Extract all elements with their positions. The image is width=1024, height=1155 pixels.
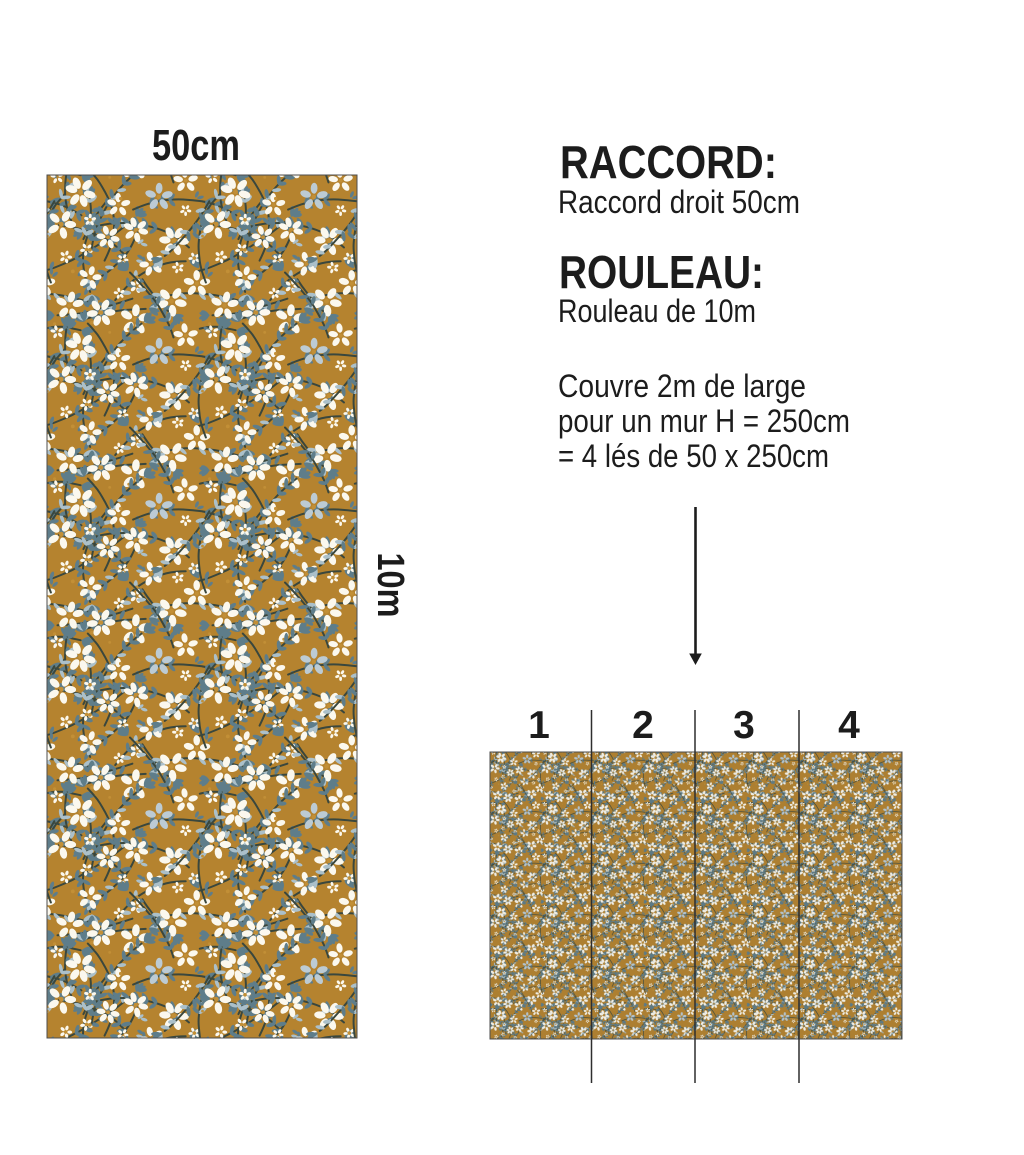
svg-text:RACCORD:: RACCORD: bbox=[560, 136, 777, 188]
svg-text:= 4 lés de 50 x 250cm: = 4 lés de 50 x 250cm bbox=[558, 438, 829, 474]
svg-text:1: 1 bbox=[528, 704, 550, 747]
svg-text:4: 4 bbox=[838, 704, 860, 747]
svg-text:10m: 10m bbox=[369, 553, 411, 618]
svg-text:pour un mur H = 250cm: pour un mur H = 250cm bbox=[558, 403, 850, 439]
svg-text:50cm: 50cm bbox=[152, 121, 240, 170]
svg-text:Rouleau de 10m: Rouleau de 10m bbox=[558, 293, 756, 329]
svg-text:ROULEAU:: ROULEAU: bbox=[559, 246, 764, 298]
svg-text:Raccord droit 50cm: Raccord droit 50cm bbox=[558, 184, 800, 220]
svg-text:Couvre 2m de large: Couvre 2m de large bbox=[558, 368, 806, 404]
svg-text:2: 2 bbox=[632, 704, 654, 747]
svg-text:3: 3 bbox=[733, 704, 755, 747]
